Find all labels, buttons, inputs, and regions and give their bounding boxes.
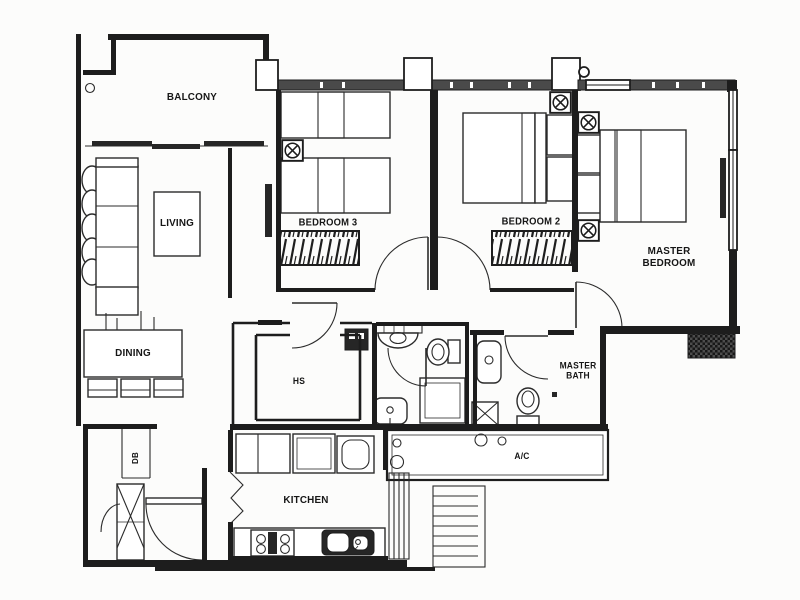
household-shelter-door: [292, 303, 337, 348]
master-bed: [577, 130, 686, 222]
bedroom2-wardrobe: [492, 231, 572, 265]
room-label-living: LIVING: [160, 217, 194, 229]
room-label-balcony: BALCONY: [167, 91, 217, 103]
room-label-db: DB: [131, 452, 141, 464]
bedroom3-wardrobe: [280, 231, 359, 265]
walls: [76, 34, 740, 571]
master-dresser-mirror: [720, 158, 726, 218]
bedroom3-door: [375, 237, 428, 290]
aircon-fancoil-icon: [550, 92, 571, 113]
room-label-bedroom3: BEDROOM 3: [299, 217, 358, 229]
room-label-bedroom2: BEDROOM 2: [502, 216, 561, 228]
kitchen-bifold-door: [230, 472, 243, 524]
balcony-sliding-door: [85, 141, 268, 149]
aircon-fancoil-icon: [282, 140, 303, 161]
room-label-master-bedroom: MASTER BEDROOM: [635, 245, 703, 269]
yard-louvre-panel: [389, 473, 409, 559]
living-sofa: [82, 158, 138, 315]
room-label-master-bath: MASTER BATH: [552, 361, 605, 382]
aircon-fancoil-icon: [578, 220, 599, 241]
floor-plan: BALCONY LIVING DINING DB BEDROOM 3 BEDRO…: [0, 0, 800, 600]
entrance: [101, 484, 202, 560]
room-label-dining: DINING: [115, 347, 151, 359]
ledge-ladder-hatch: [433, 486, 485, 567]
ac-ledge: [387, 430, 608, 480]
aircon-fancoil-icon: [578, 112, 599, 133]
bedroom2-door: [437, 237, 490, 290]
common-bathroom-fixtures: [345, 325, 465, 424]
room-label-kitchen: KITCHEN: [283, 494, 328, 506]
room-label-ac: A/C: [514, 451, 529, 461]
bedroom3-door-panel: [265, 184, 272, 237]
wall-end-cap: [86, 84, 95, 93]
master-bedroom-door: [576, 282, 622, 328]
master-bath-door-arc: [505, 336, 548, 379]
floor-plan-drawing: [0, 0, 800, 600]
db-cabinet: [122, 424, 150, 478]
hatched-ledge-block: [688, 334, 735, 358]
master-bathroom-fixtures: [472, 341, 557, 425]
room-label-hs: HS: [293, 376, 305, 386]
bedroom2-bed: [463, 113, 573, 203]
